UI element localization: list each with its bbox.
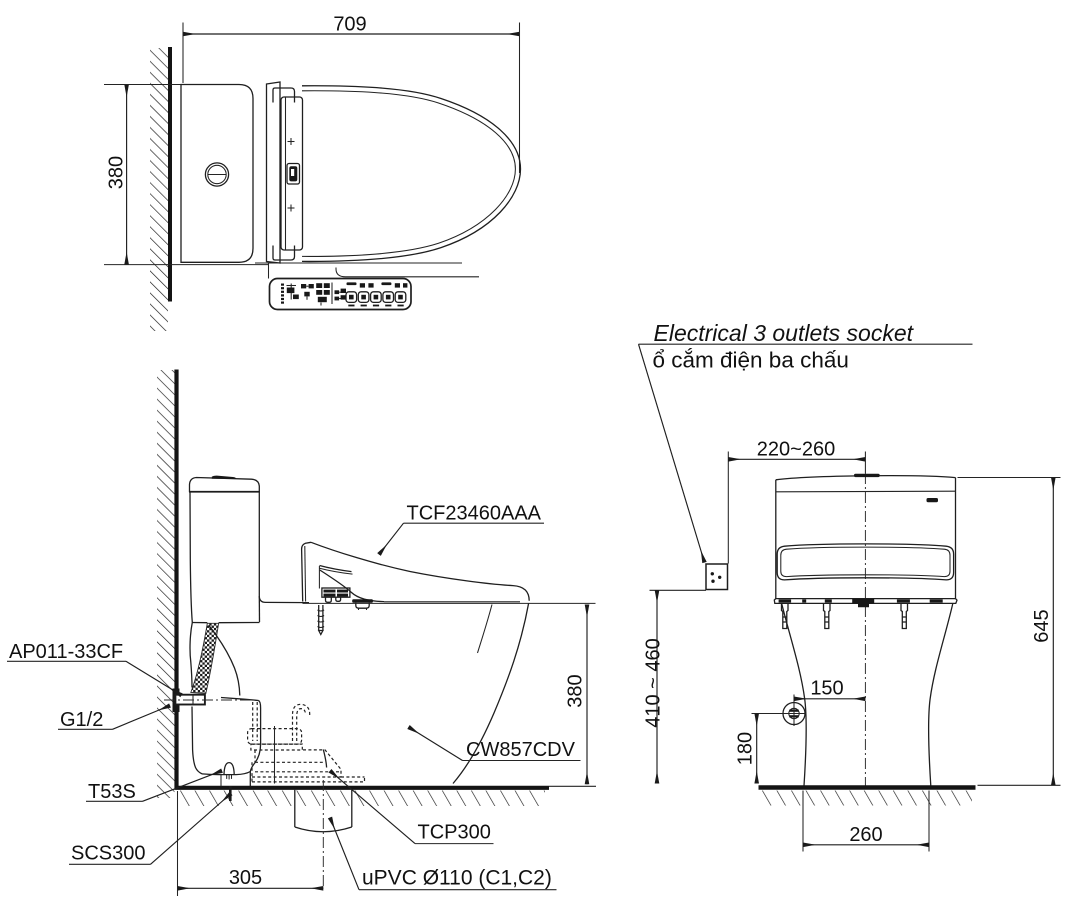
- svg-text:CW857CDV: CW857CDV: [466, 739, 576, 761]
- svg-text:260: 260: [849, 824, 882, 846]
- svg-text:220~260: 220~260: [757, 439, 835, 461]
- svg-text:150: 150: [810, 678, 843, 700]
- svg-text:ổ cắm điện ba chấu: ổ cắm điện ba chấu: [653, 348, 849, 373]
- svg-text:TCP300: TCP300: [418, 822, 491, 844]
- svg-text:410 ~ 460: 410 ~ 460: [643, 638, 665, 728]
- svg-text:180: 180: [735, 732, 757, 765]
- svg-text:709: 709: [333, 14, 366, 36]
- svg-text:Electrical 3 outlets socket: Electrical 3 outlets socket: [654, 320, 915, 346]
- svg-text:AP011-33CF: AP011-33CF: [9, 641, 123, 663]
- svg-text:380: 380: [565, 674, 587, 707]
- svg-text:SCS300: SCS300: [71, 843, 146, 865]
- svg-text:T53S: T53S: [88, 781, 136, 803]
- svg-text:380: 380: [106, 156, 128, 189]
- svg-text:uPVC Ø110 (C1,C2): uPVC Ø110 (C1,C2): [362, 867, 552, 890]
- svg-text:TCF23460AAA: TCF23460AAA: [407, 503, 542, 525]
- svg-text:G1/2: G1/2: [60, 709, 103, 731]
- svg-text:645: 645: [1031, 609, 1053, 642]
- svg-text:305: 305: [229, 867, 262, 889]
